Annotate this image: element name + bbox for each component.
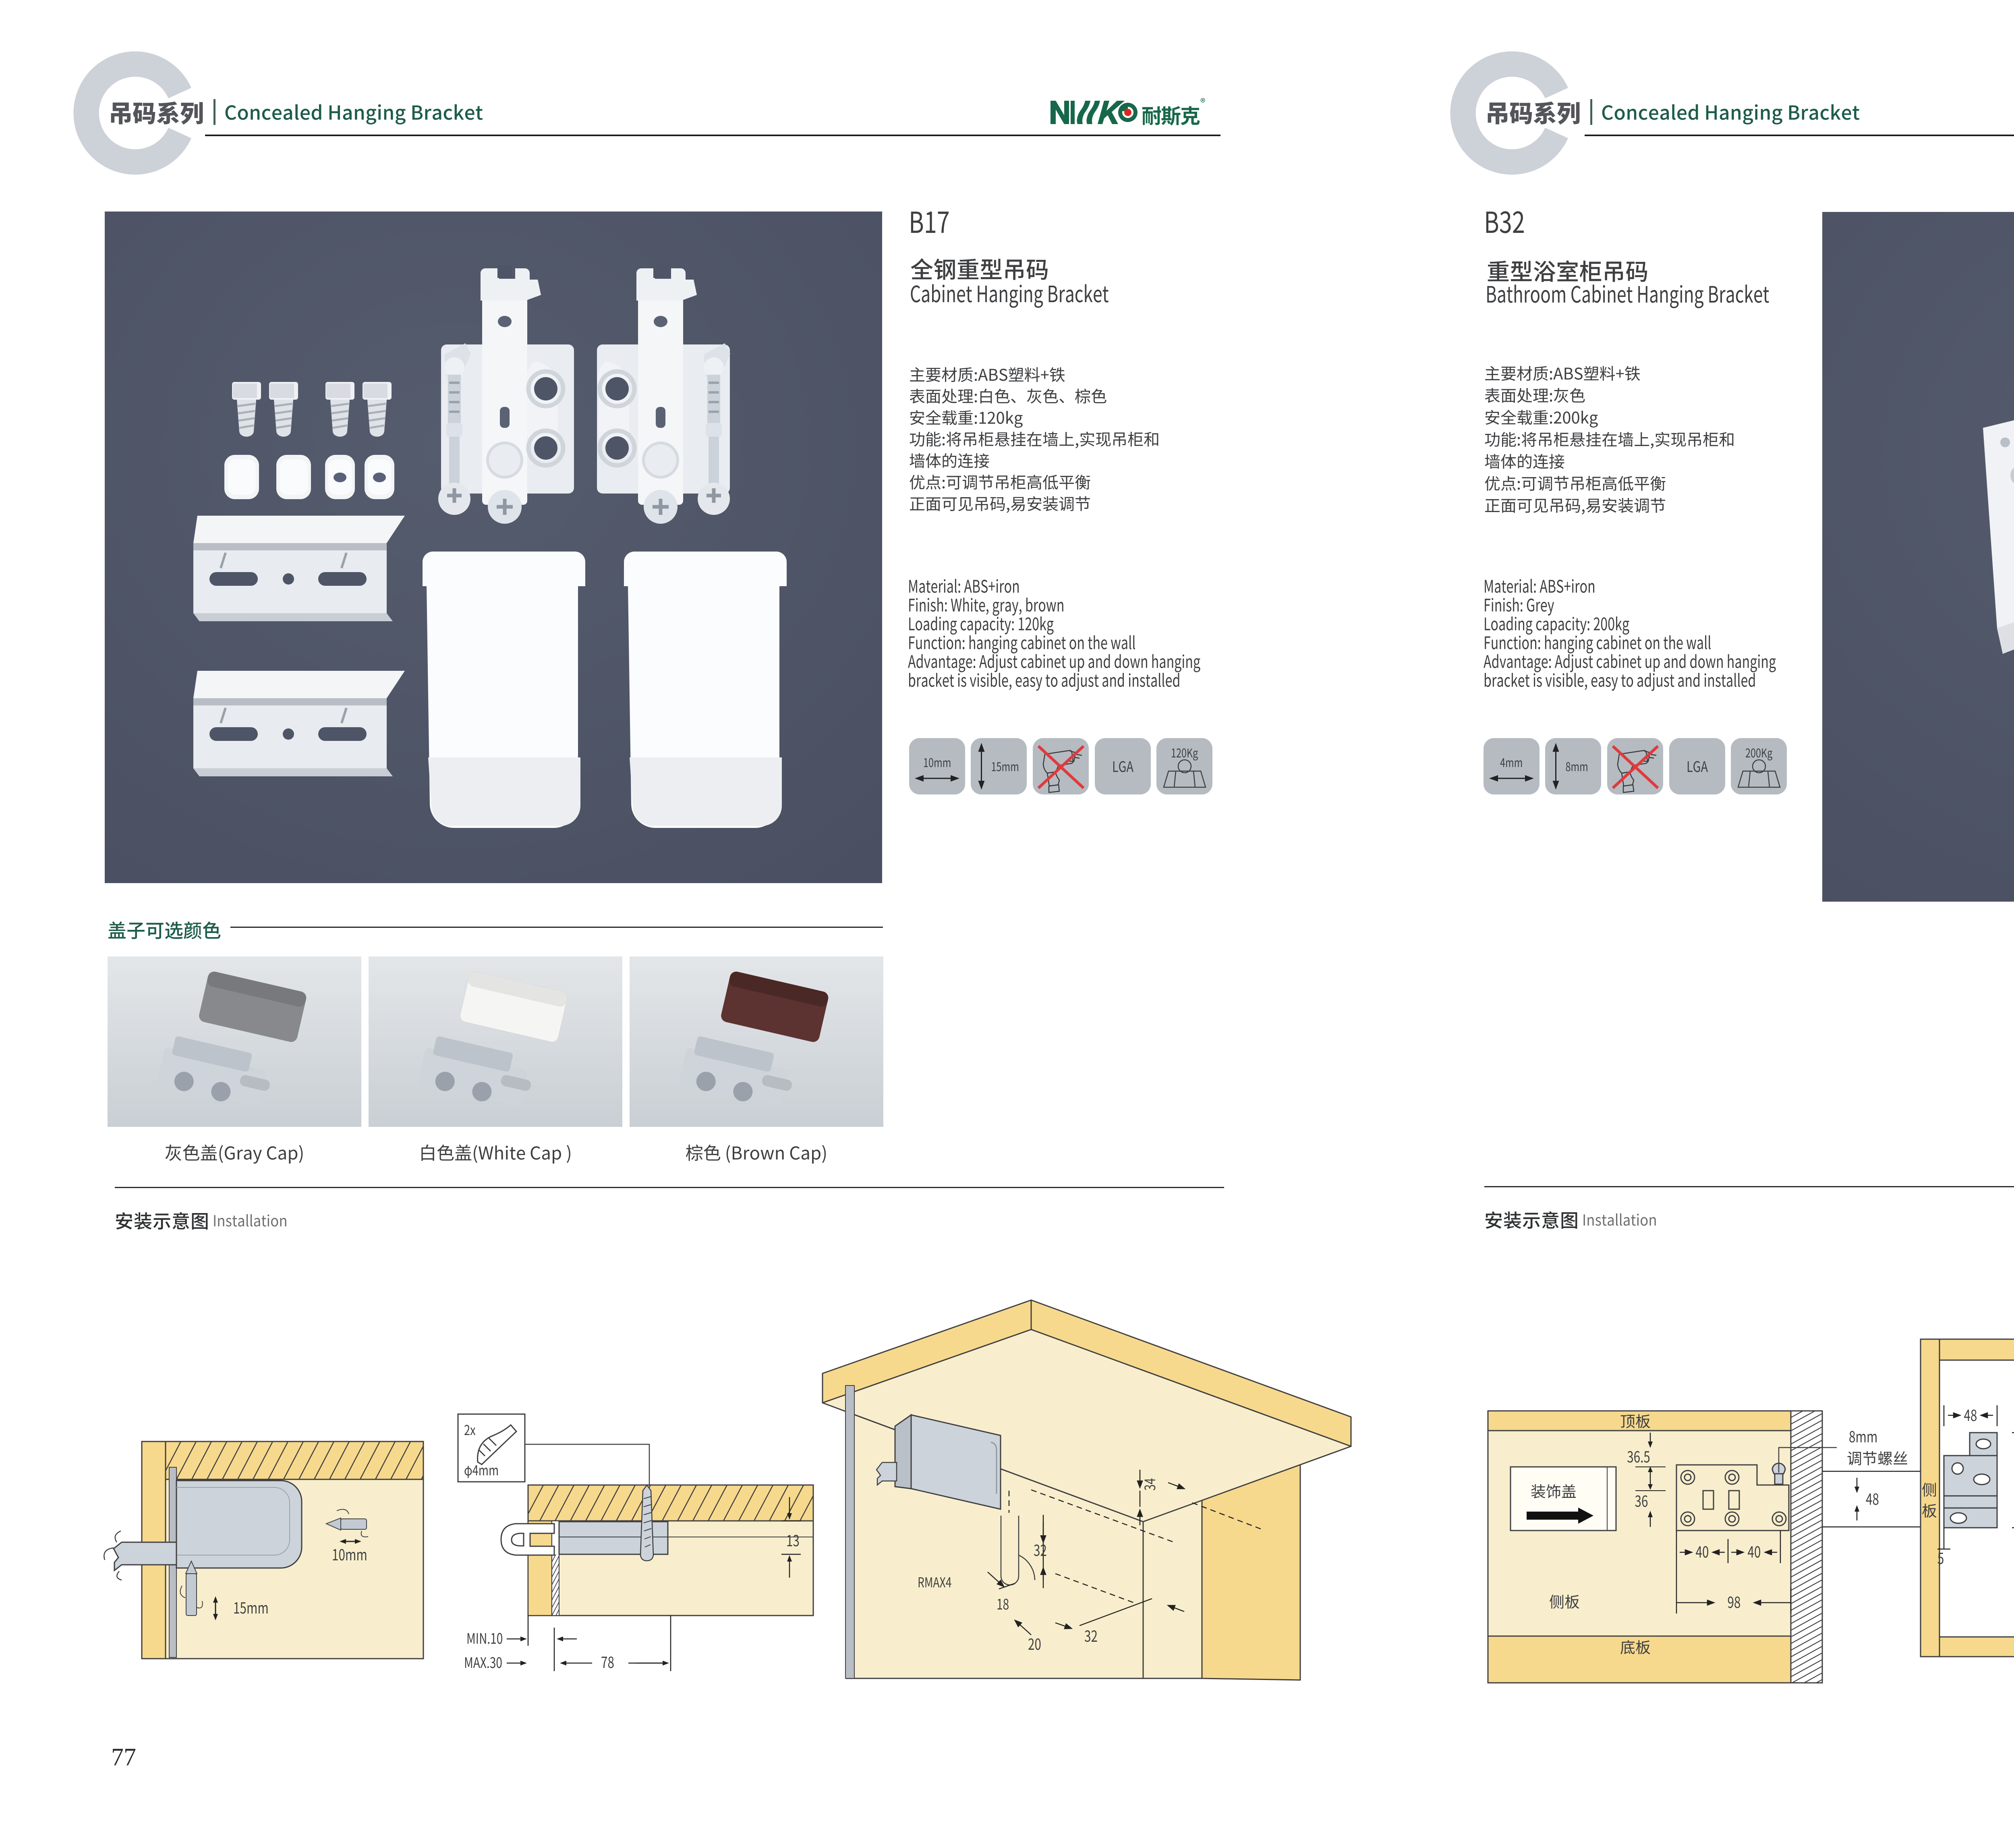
- svg-text:77: 77: [111, 1744, 136, 1771]
